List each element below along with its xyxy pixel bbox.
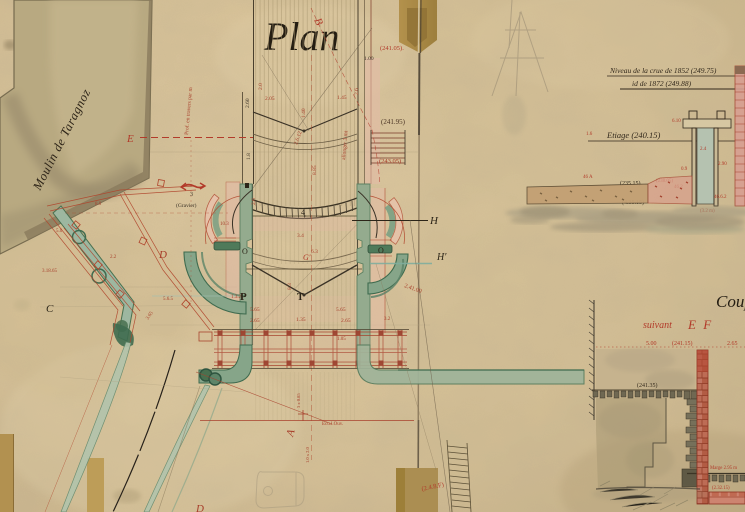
- svg-text:suivant: suivant: [643, 320, 672, 331]
- svg-text:O: O: [242, 247, 248, 256]
- svg-text:3.18.65: 3.18.65: [42, 269, 58, 274]
- svg-text:5.6.5: 5.6.5: [163, 297, 174, 302]
- svg-text:3.4: 3.4: [297, 233, 304, 239]
- svg-text:1.8: 1.8: [246, 153, 252, 160]
- svg-text:10.3: 10.3: [220, 222, 229, 227]
- svg-text:2.0: 2.0: [258, 83, 264, 90]
- svg-text:2.05: 2.05: [265, 96, 275, 102]
- svg-text:2.60: 2.60: [245, 98, 251, 108]
- svg-text:1.35: 1.35: [296, 317, 306, 323]
- svg-text:1.05: 1.05: [337, 337, 346, 342]
- svg-text:5.65: 5.65: [336, 307, 346, 313]
- svg-text:D: D: [195, 503, 204, 512]
- svg-text:3: 3: [190, 192, 193, 198]
- svg-text:1.00: 1.00: [364, 56, 374, 62]
- svg-text:5.65: 5.65: [250, 307, 260, 313]
- svg-text:Etiage (240.15): Etiage (240.15): [606, 130, 661, 140]
- svg-text:2.6: 2.6: [251, 198, 257, 205]
- svg-text:6.10: 6.10: [672, 119, 681, 124]
- svg-text:2.90: 2.90: [718, 162, 727, 167]
- svg-text:2.2: 2.2: [110, 255, 117, 260]
- svg-text:2.65: 2.65: [341, 318, 351, 324]
- svg-text:(241.35): (241.35): [637, 382, 658, 389]
- svg-text:E F: E F: [687, 317, 713, 332]
- svg-text:(241.05).: (241.05).: [380, 45, 404, 52]
- svg-text:Ecu.l.Ouv.: Ecu.l.Ouv.: [322, 422, 343, 427]
- svg-text:1.3.2: 1.3.2: [231, 295, 242, 300]
- svg-text:8.3: 8.3: [287, 283, 293, 290]
- svg-text:2.6: 2.6: [354, 88, 360, 95]
- svg-text:T: T: [297, 292, 304, 303]
- svg-text:0.9: 0.9: [681, 167, 688, 172]
- svg-text:(Gravier): (Gravier): [176, 202, 197, 209]
- svg-text:2.65: 2.65: [727, 341, 738, 347]
- svg-text:3 x 0.85: 3 x 0.85: [296, 393, 301, 408]
- svg-text:P: P: [240, 291, 247, 303]
- svg-text:id de 1872 (249.88): id de 1872 (249.88): [632, 79, 692, 88]
- svg-text:1.0 x 2.0: 1.0 x 2.0: [305, 447, 310, 464]
- svg-text:5.00: 5.00: [646, 341, 657, 347]
- svg-text:(241.15): (241.15): [672, 340, 693, 347]
- svg-text:5.0: 5.0: [56, 229, 63, 234]
- svg-text:1.6: 1.6: [586, 132, 593, 137]
- svg-text:Marge 2.95 m: Marge 2.95 m: [710, 466, 737, 471]
- svg-text:2.65: 2.65: [250, 318, 260, 324]
- svg-text:8.85: 8.85: [312, 165, 318, 175]
- svg-text:6.3: 6.3: [311, 249, 318, 255]
- svg-text:3.2: 3.2: [384, 317, 391, 322]
- svg-text:E: E: [126, 133, 134, 145]
- svg-text:G′: G′: [303, 253, 311, 262]
- svg-text:C: C: [46, 303, 54, 315]
- svg-text:(243.05): (243.05): [379, 158, 401, 165]
- svg-text:46.6.2: 46.6.2: [714, 195, 727, 200]
- svg-text:1.40: 1.40: [301, 108, 307, 118]
- svg-text:Coup: Coup: [716, 292, 745, 311]
- svg-text:1.45: 1.45: [337, 95, 347, 101]
- svg-text:D: D: [158, 249, 167, 261]
- svg-text:8.0: 8.0: [95, 202, 102, 207]
- svg-text:H′: H′: [436, 252, 447, 263]
- svg-text:(2.32.15): (2.32.15): [712, 486, 730, 491]
- svg-text:Niveau de la crue de 1852 (249: Niveau de la crue de 1852 (249.75): [609, 66, 717, 75]
- svg-text:(241.95): (241.95): [381, 118, 406, 126]
- svg-text:46 A: 46 A: [583, 175, 593, 180]
- svg-text:2.4: 2.4: [700, 147, 707, 152]
- svg-text:H: H: [429, 215, 439, 227]
- svg-text:O: O: [378, 246, 384, 255]
